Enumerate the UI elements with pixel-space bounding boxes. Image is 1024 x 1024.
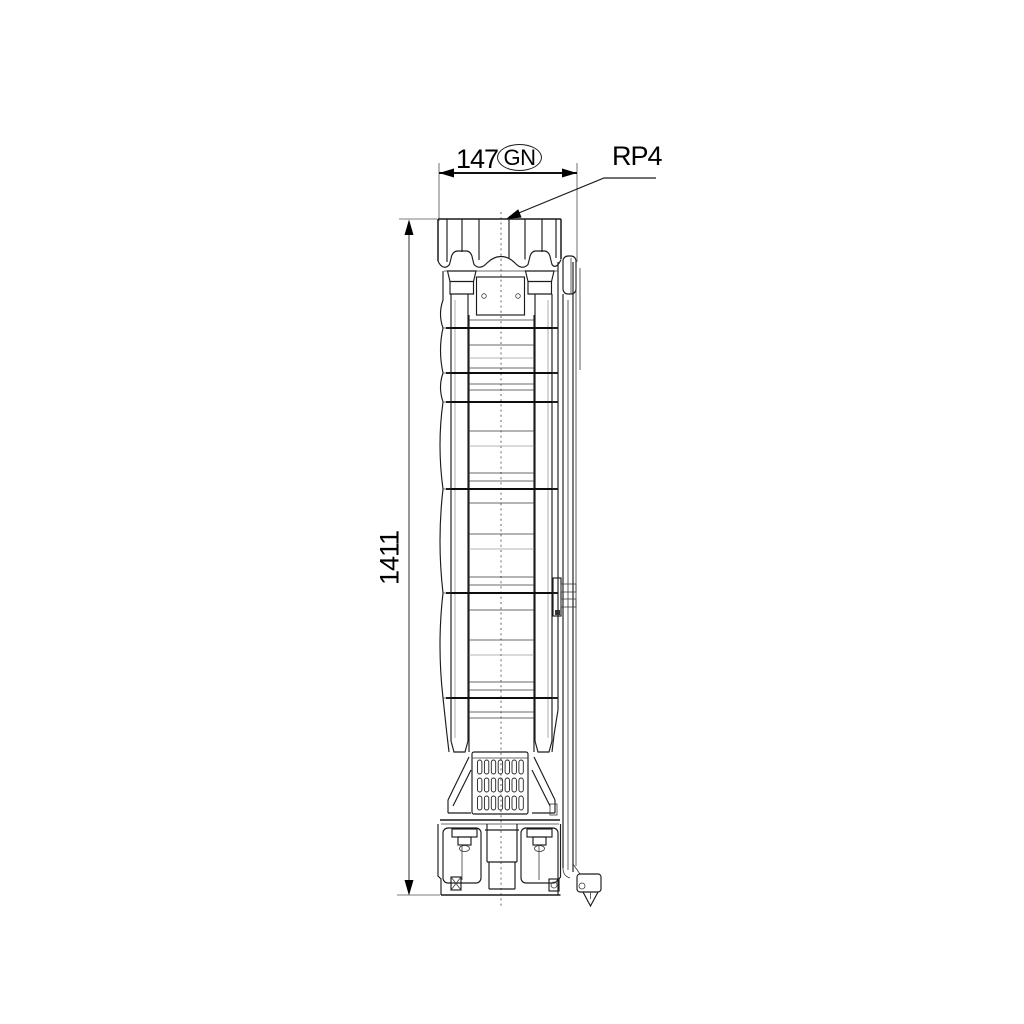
motor-bolt-left [452,829,477,852]
drawing-canvas: 147 GN RP4 1411 [0,0,1024,1024]
height-dimension-label: 1411 [377,531,404,585]
rp4-leader-line [504,178,656,223]
nameplate-hole-right [516,294,521,299]
dimension-arrow-down [405,880,414,896]
cable-guard-top [563,256,576,294]
motor-section [438,820,561,895]
width-dimension-label: 147 [456,146,498,173]
inlet-strainer [448,752,557,815]
nameplate [477,277,525,315]
connection-size-label: RP4 [612,143,662,170]
dimension-arrow-right [562,169,577,178]
discharge-chamber-top [438,219,561,271]
nameplate-hole-left [482,294,487,299]
outlet-variant-badge: GN [497,144,542,171]
pump-stage-stack [440,262,558,752]
cable-end-connector [563,864,601,906]
power-cable [553,256,601,906]
leader-arrow [504,209,521,223]
outlet-variant-label: GN [504,145,536,171]
dimension-arrow-left [439,169,454,178]
dimension-arrow-up [405,220,414,236]
motor-bolt-right [527,829,552,852]
